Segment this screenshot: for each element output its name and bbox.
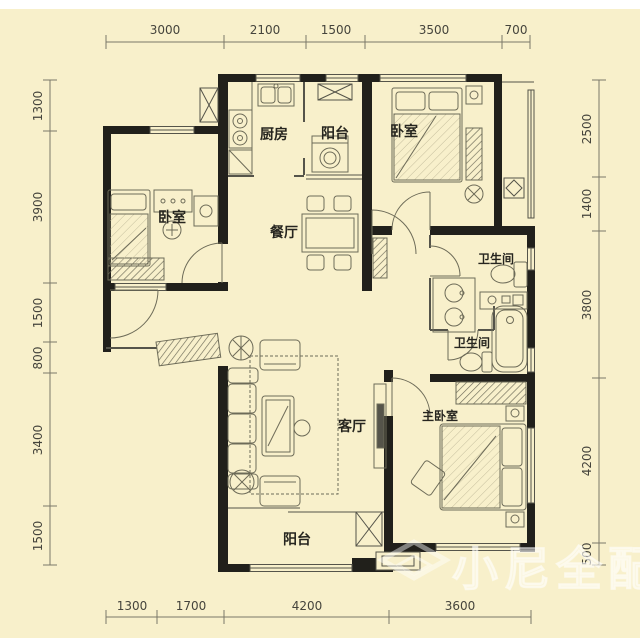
dim-bottom-2: 4200: [292, 599, 323, 613]
hatched-elements: [108, 128, 526, 404]
door-bedroom-left: [182, 243, 222, 283]
dim-left-4: 3400: [31, 425, 45, 456]
desk-left-bedroom: [194, 196, 218, 226]
window-bedroom-left-top: [150, 127, 194, 134]
window-balcony-bottom: [250, 565, 352, 572]
dim-right-0: 2500: [580, 114, 594, 145]
dining-set: [302, 196, 358, 270]
bed-master: [440, 424, 526, 510]
window-master-right: [528, 428, 535, 503]
dim-left-1: 3900: [31, 192, 45, 223]
watermark-text: 小尼全配: [452, 542, 640, 596]
dim-right-2: 3800: [580, 290, 594, 321]
room-label-kitchen: 厨房: [260, 126, 288, 143]
dim-left-5: 1500: [31, 521, 45, 552]
room-label-bath-2: 卫生间: [454, 335, 490, 350]
room-label-bedroom-top-right: 卧室: [390, 123, 418, 140]
sofa-set: [228, 340, 300, 506]
top-white-strip: [0, 0, 640, 9]
stove: [229, 110, 252, 148]
furniture: [108, 82, 527, 527]
dim-left-3: 800: [31, 347, 45, 370]
window-bath-1: [528, 248, 535, 270]
dim-right-1: 1400: [580, 189, 594, 220]
window-bedroom-top: [380, 75, 466, 82]
floor-plan-svg: 3000 2100 1500 3500 700 1300 1700 4200 3…: [0, 0, 640, 638]
shaft-bay: [504, 178, 524, 198]
radiator-hall: [373, 238, 387, 278]
dim-top-2: 1500: [321, 23, 352, 37]
dim-right-3: 4200: [580, 446, 594, 477]
plant-bedroom-top: [465, 185, 483, 203]
room-label-balcony-top: 阳台: [321, 125, 349, 142]
coffee-table: [262, 396, 310, 456]
toilet-bath-2: [460, 352, 492, 372]
dresser-left-bedroom: [154, 190, 192, 212]
room-label-master-bedroom: 主卧室: [422, 408, 458, 423]
door-entry: [110, 290, 158, 338]
vanity-double: [433, 278, 475, 332]
slider-balcony-top: [306, 175, 362, 179]
nightstand-master-bottom: [506, 512, 524, 527]
dim-left-2: 1500: [31, 298, 45, 329]
shaft-balcony-top: [318, 84, 352, 100]
chair-master: [410, 460, 446, 497]
dimension-lines: [43, 35, 606, 624]
room-label-bath-1: 卫生间: [478, 251, 514, 266]
room-label-living: 客厅: [337, 418, 366, 435]
nightstand-bedroom-top: [466, 86, 482, 104]
dim-top-0: 3000: [150, 23, 181, 37]
wardrobe-bedroom-top: [466, 128, 482, 180]
plant-living-top: [229, 336, 253, 360]
dimension-labels: 3000 2100 1500 3500 700 1300 1700 4200 3…: [31, 23, 594, 613]
window-bedroom-left-bottom: [115, 284, 166, 291]
entry-cabinet: [156, 333, 221, 365]
window-bath-2: [528, 348, 535, 372]
bed-left-bedroom: [108, 190, 150, 266]
window-kitchen: [256, 75, 300, 82]
door-bedroom-top: [392, 192, 430, 230]
dim-bottom-3: 3600: [445, 599, 476, 613]
dim-top-1: 2100: [250, 23, 281, 37]
room-label-balcony-bottom: 阳台: [283, 531, 311, 548]
dim-bottom-0: 1300: [117, 599, 148, 613]
dim-left-0: 1300: [31, 91, 45, 122]
room-label-dining: 餐厅: [269, 224, 298, 241]
room-label-bedroom-left: 卧室: [158, 209, 186, 226]
dim-top-3: 3500: [419, 23, 450, 37]
shaft-kitchen: [200, 88, 218, 122]
slider-living-balcony: [228, 508, 384, 512]
shaft-balcony-bottom: [356, 512, 382, 546]
dim-bottom-1: 1700: [176, 599, 207, 613]
bathtub: [492, 306, 527, 372]
nightstand-master-top: [506, 406, 524, 421]
dim-top-4: 700: [505, 23, 528, 37]
wardrobe-master: [456, 382, 526, 404]
floor-plan-page: 3000 2100 1500 3500 700 1300 1700 4200 3…: [0, 0, 640, 638]
door-bath-1: [430, 246, 460, 276]
window-balcony-top: [326, 75, 358, 82]
